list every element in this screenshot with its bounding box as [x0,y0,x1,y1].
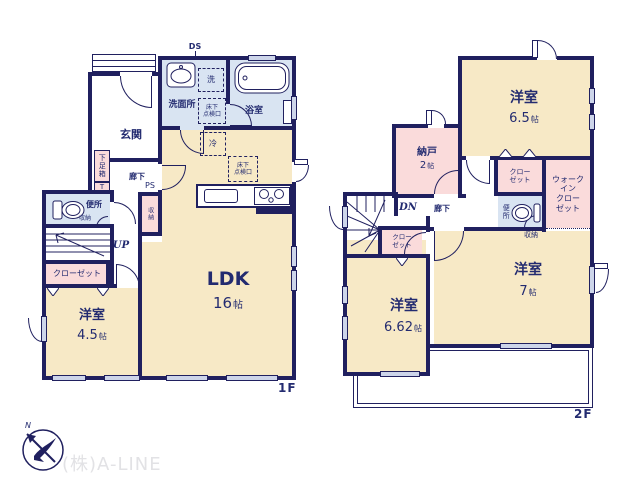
folding-door-marker [523,149,536,157]
toilet-icon [511,202,541,224]
porch-step-line [93,60,155,61]
size-unit: 帖 [233,296,243,311]
label-corridor-2f: 廊下 [428,203,456,214]
label-ldk: LDK [200,268,256,290]
window [291,246,297,267]
label-ps: PS [140,181,160,191]
window [104,375,140,381]
label-yoshitsu-7: 洋室 [508,262,548,279]
label-toilet-1f: 便所 [82,200,106,210]
yoshitsu65-door-leaf [489,160,490,184]
window-arc [432,110,446,124]
label-storage-2f: 収納 [518,231,544,240]
label-closet-2f-small: クロー ゼット [382,231,422,253]
wall-segment [204,126,296,130]
entrance-porch-steps [92,54,156,72]
washbasin-icon [166,62,196,88]
folding-door-marker [396,258,408,266]
company-watermark: (株)A-LINE [62,450,162,476]
wall-segment [158,56,248,60]
size-unit: 帖 [414,323,422,334]
entrance-door-arc [120,76,152,108]
window [166,375,208,381]
label-floor-2f: 2F [574,407,593,421]
wall-segment [494,192,546,196]
window [226,375,278,381]
yoshitsu65-door-arc [466,160,490,184]
window [291,270,297,291]
bathtub-icon [234,62,290,94]
staircase-up [46,228,110,260]
wall-segment [392,124,428,128]
label-yoshitsu-1f-size: 4.5帖 [66,328,118,344]
label-toilet-storage: 収納 [74,215,96,223]
label-yoshitsu-662-size: 6.62帖 [374,320,432,336]
wall-segment [42,260,114,264]
kitchen-sink [204,189,238,203]
label-yoshitsu-65-size: 6.5帖 [500,111,548,127]
underfloor-hatch: 床下 点検口 [228,156,258,182]
size-number: 16 [213,294,232,312]
size-unit: 帖 [529,287,537,298]
window [342,286,348,304]
window [342,316,348,340]
wall-segment [392,194,434,198]
label-yoshitsu-662: 洋室 [384,298,424,315]
wall-segment [426,254,430,376]
wall-segment [110,158,158,162]
size-unit: 帖 [531,114,539,125]
wall-segment [343,236,347,376]
label-refrigerator: 冷 [209,139,217,149]
wall-segment [88,72,120,76]
wall-segment [158,56,162,164]
window [52,375,86,381]
underfloor-hatch: 床下 点検口 [198,98,226,124]
wall-segment [110,194,114,202]
label-t-cabinet: T [94,182,110,192]
toilet-door-arc [114,202,136,224]
label-walk-in-closet: ウォーク イン クロー ゼット [546,162,590,226]
wall-segment [88,72,92,194]
size-unit: 帖 [99,331,107,342]
label-up: UP [110,240,132,252]
size-number: 6.5 [509,111,530,126]
wall-segment [557,56,594,60]
label-yoshitsu-65: 洋室 [504,90,544,107]
porch-step-line [93,66,155,67]
yoshitsu7-door-leaf [434,231,435,261]
label-nando: 納戸 [412,146,442,159]
folding-door-marker [499,149,512,157]
label-laundry: 洗 [207,75,215,85]
wall-segment [343,254,430,258]
entrance-door-leaf [151,76,152,108]
wall-segment [158,190,162,236]
casement-window-arc [329,206,343,230]
balcony-window [380,371,420,377]
label-dn: DN [396,202,420,214]
balcony-window [500,343,552,349]
laundry-space: 洗 [198,68,224,92]
label-shaft-storage: 収納 [144,198,156,230]
ldk-entry-door-leaf [162,165,186,166]
window [248,55,276,61]
label-underfloor-hatch: 床下 点検口 [203,104,221,118]
wall-segment [458,60,462,198]
wic-dotted-boundary [546,228,590,229]
refrigerator-space: 冷 [200,132,226,156]
room-yoshitsu-6-5 [462,60,590,156]
counter-edge [256,208,292,214]
wall-segment [458,156,466,160]
ds-tick [195,51,196,57]
casement-window-arc [28,318,42,342]
wall-segment [444,124,462,128]
exterior-door-arc [596,269,609,293]
label-washroom: 洗面所 [164,100,200,111]
label-genkan: 玄関 [110,128,152,141]
label-ldk-size: 16帖 [202,294,254,312]
label-toilet-2f: 便所 [500,200,512,224]
window [589,266,595,294]
wall-segment [458,194,466,198]
bath-counter [283,100,292,124]
wall-segment [464,227,494,231]
label-yoshitsu-7-size: 7帖 [512,284,544,300]
label-bathroom: 浴室 [240,106,268,117]
window [589,88,595,104]
yoshitsu1f-door-leaf [116,264,117,288]
wall-segment [426,227,434,231]
wall-segment [392,124,396,198]
label-yoshitsu-1f: 洋室 [72,308,112,324]
label-closet-2f-top: クロー ゼット [498,162,542,190]
size-number: 7 [519,284,527,299]
folding-door-marker [97,288,109,296]
wall-segment [458,56,537,60]
label-shoe-cabinet: 下足箱 [95,151,109,181]
wall-segment [138,236,142,376]
wall-segment [226,58,230,104]
label-compass-n: N [22,421,34,431]
stove-icon [254,187,290,205]
size-number: 4.5 [77,328,98,343]
folding-door-marker [47,288,59,296]
ldk-exterior-door-arc [296,165,309,182]
size-number: 6.62 [384,320,413,335]
label-nando-size: 2帖 [412,160,442,173]
wall-segment [138,192,142,236]
yoshitsu1f-door-arc [116,264,140,288]
floor-plan: 洗 床下 点検口 冷 床下 点検口 DS 洗面所 浴室 玄関 下足箱 T 廊下 … [0,0,640,480]
room-ldk-ext [142,242,162,376]
label-underfloor-hatch: 床下 点検口 [234,162,252,176]
window [589,114,595,130]
label-closet-1f: クローゼット [46,266,108,282]
compass-north-icon [20,426,66,472]
size-unit: 帖 [427,161,434,171]
label-floor-1f: 1F [278,381,297,395]
window-arc [538,40,557,59]
size-number: 2 [420,160,426,171]
